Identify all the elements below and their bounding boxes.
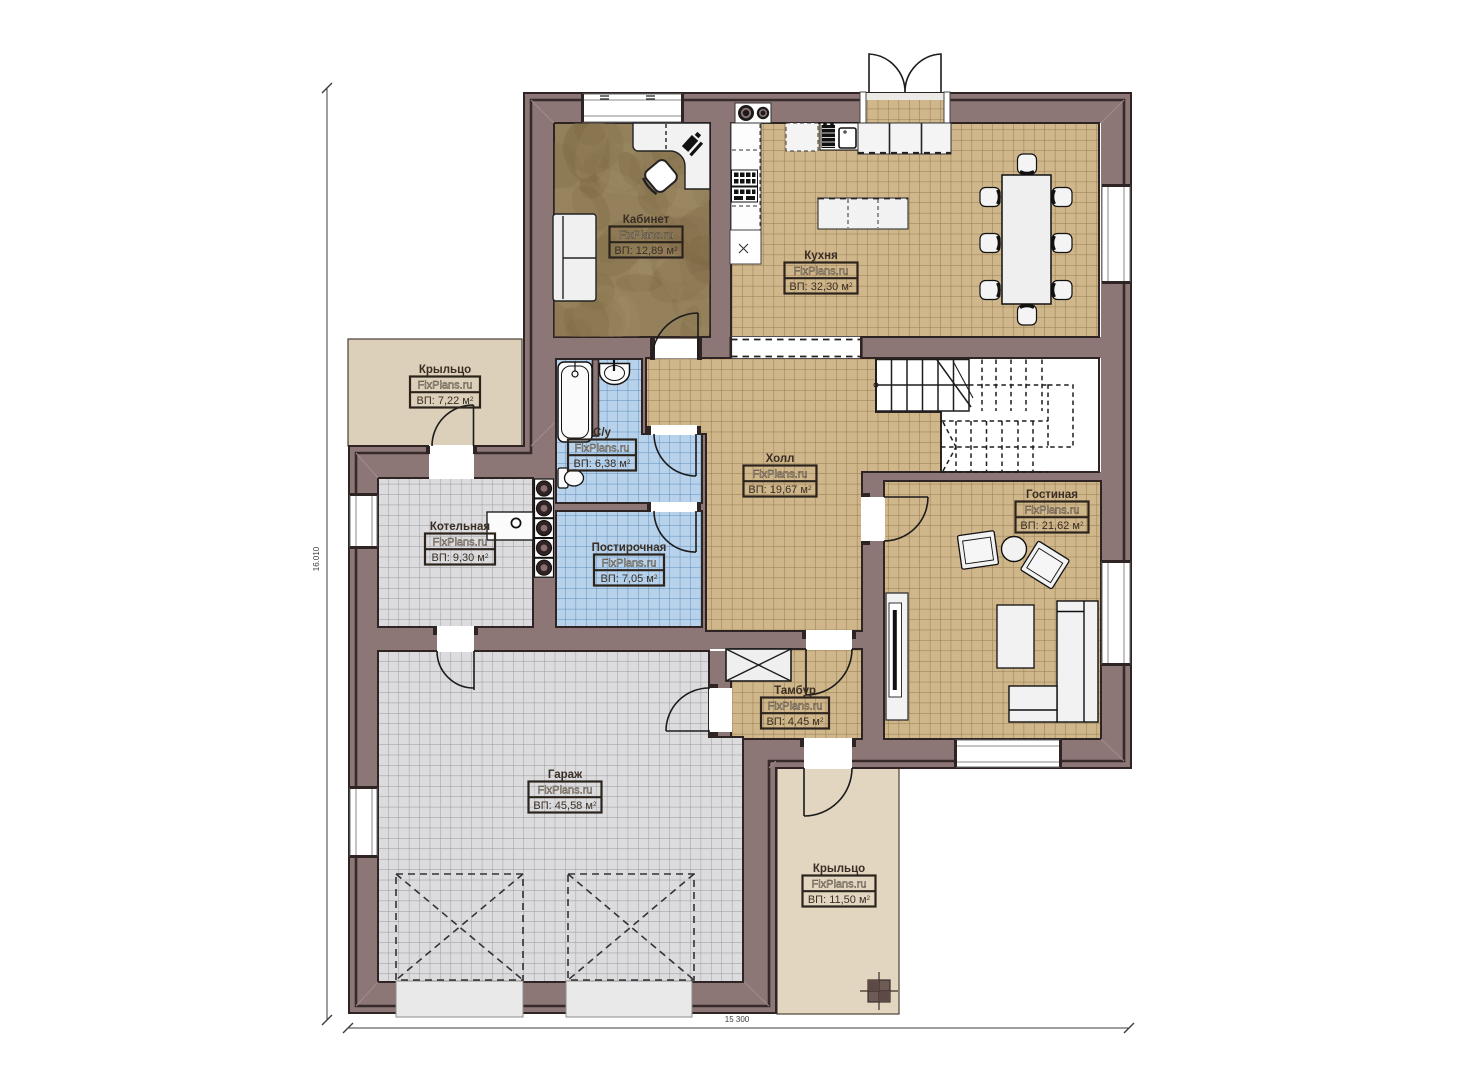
svg-text:Кухня: Кухня [804, 250, 838, 262]
svg-text:FixPlans.ru: FixPlans.ru [574, 443, 629, 455]
svg-text:Тамбур: Тамбур [774, 685, 816, 697]
svg-text:Гараж: Гараж [548, 769, 583, 781]
svg-text:Гостиная: Гостиная [1026, 489, 1078, 501]
svg-text:FixPlans.ru: FixPlans.ru [432, 537, 487, 549]
svg-text:15 300: 15 300 [725, 1015, 750, 1024]
svg-text:С/у: С/у [593, 427, 612, 439]
svg-text:FixPlans.ru: FixPlans.ru [1024, 505, 1079, 517]
svg-text:Крыльцо: Крыльцо [419, 364, 471, 376]
svg-text:ВП: 21,62 м2: ВП: 21,62 м2 [1020, 520, 1084, 532]
svg-text:ВП: 45,58 м2: ВП: 45,58 м2 [533, 800, 597, 812]
svg-text:Кабинет: Кабинет [623, 214, 670, 226]
svg-text:FixPlans.ru: FixPlans.ru [793, 266, 848, 278]
svg-text:16.010: 16.010 [312, 546, 321, 571]
svg-text:FixPlans.ru: FixPlans.ru [417, 380, 472, 392]
svg-text:FixPlans.ru: FixPlans.ru [601, 558, 656, 570]
svg-text:Котельная: Котельная [430, 521, 490, 533]
svg-text:Крыльцо: Крыльцо [813, 863, 865, 875]
svg-text:ВП: 12,89 м2: ВП: 12,89 м2 [614, 245, 678, 257]
svg-text:ВП: 19,67 м2: ВП: 19,67 м2 [748, 484, 812, 496]
svg-text:FixPlans.ru: FixPlans.ru [752, 469, 807, 481]
svg-text:FixPlans.ru: FixPlans.ru [618, 230, 673, 242]
svg-text:ВП: 6,38 м2: ВП: 6,38 м2 [573, 458, 630, 470]
svg-text:FixPlans.ru: FixPlans.ru [537, 785, 592, 797]
svg-text:ВП: 11,50 м2: ВП: 11,50 м2 [808, 894, 871, 906]
svg-text:ВП: 7,05 м2: ВП: 7,05 м2 [600, 573, 657, 585]
svg-text:ВП: 4,45 м2: ВП: 4,45 м2 [766, 716, 823, 728]
svg-text:ВП: 9,30 м2: ВП: 9,30 м2 [431, 552, 488, 564]
svg-text:FixPlans.ru: FixPlans.ru [811, 879, 866, 891]
svg-text:ВП: 7,22 м2: ВП: 7,22 м2 [416, 395, 473, 407]
svg-text:FixPlans.ru: FixPlans.ru [767, 701, 822, 713]
svg-text:Холл: Холл [766, 453, 795, 465]
svg-text:ВП: 32,30 м2: ВП: 32,30 м2 [789, 281, 853, 293]
svg-text:Постирочная: Постирочная [592, 542, 667, 554]
